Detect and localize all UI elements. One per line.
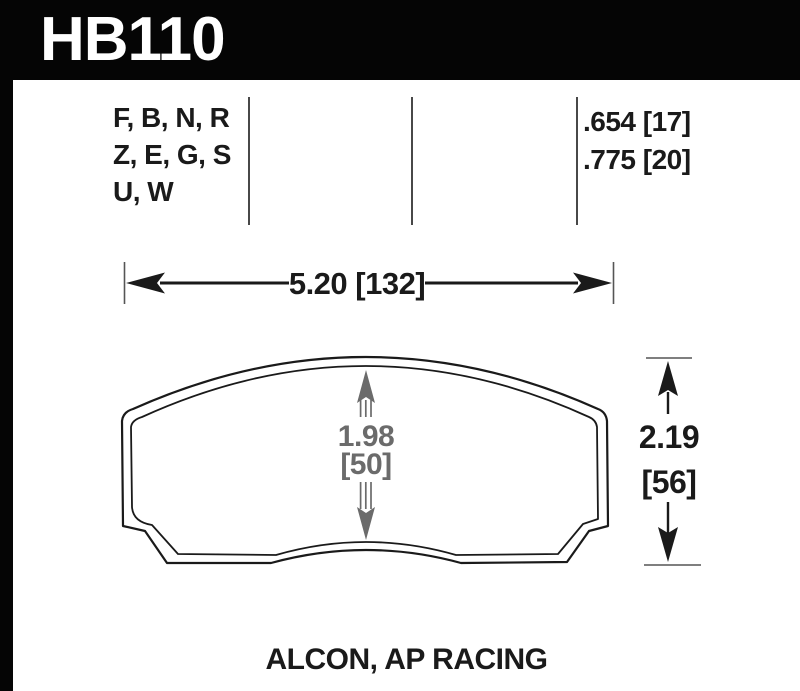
center-dim-arrow-up [357,370,375,403]
width-dim-arrow-right [573,273,612,294]
height-dim-arrow-up [658,361,678,396]
width-dimension: 5.20 [132] [125,262,614,304]
height-dimension-mm: [56] [642,464,697,500]
center-dimension: 1.98 [50] [338,370,394,540]
brake-pad-drawing: 5.20 [132] 1.98 [50] 2.19 [56] [0,0,800,691]
center-dim-arrow-down [357,507,375,540]
height-dimension-inches: 2.19 [639,419,699,455]
width-dim-arrow-left [126,273,165,294]
center-dimension-mm: [50] [340,448,391,481]
width-dimension-label: 5.20 [132] [289,266,425,301]
height-dimension: 2.19 [56] [639,358,701,565]
caliper-applications-label: ALCON, AP RACING [13,643,800,677]
